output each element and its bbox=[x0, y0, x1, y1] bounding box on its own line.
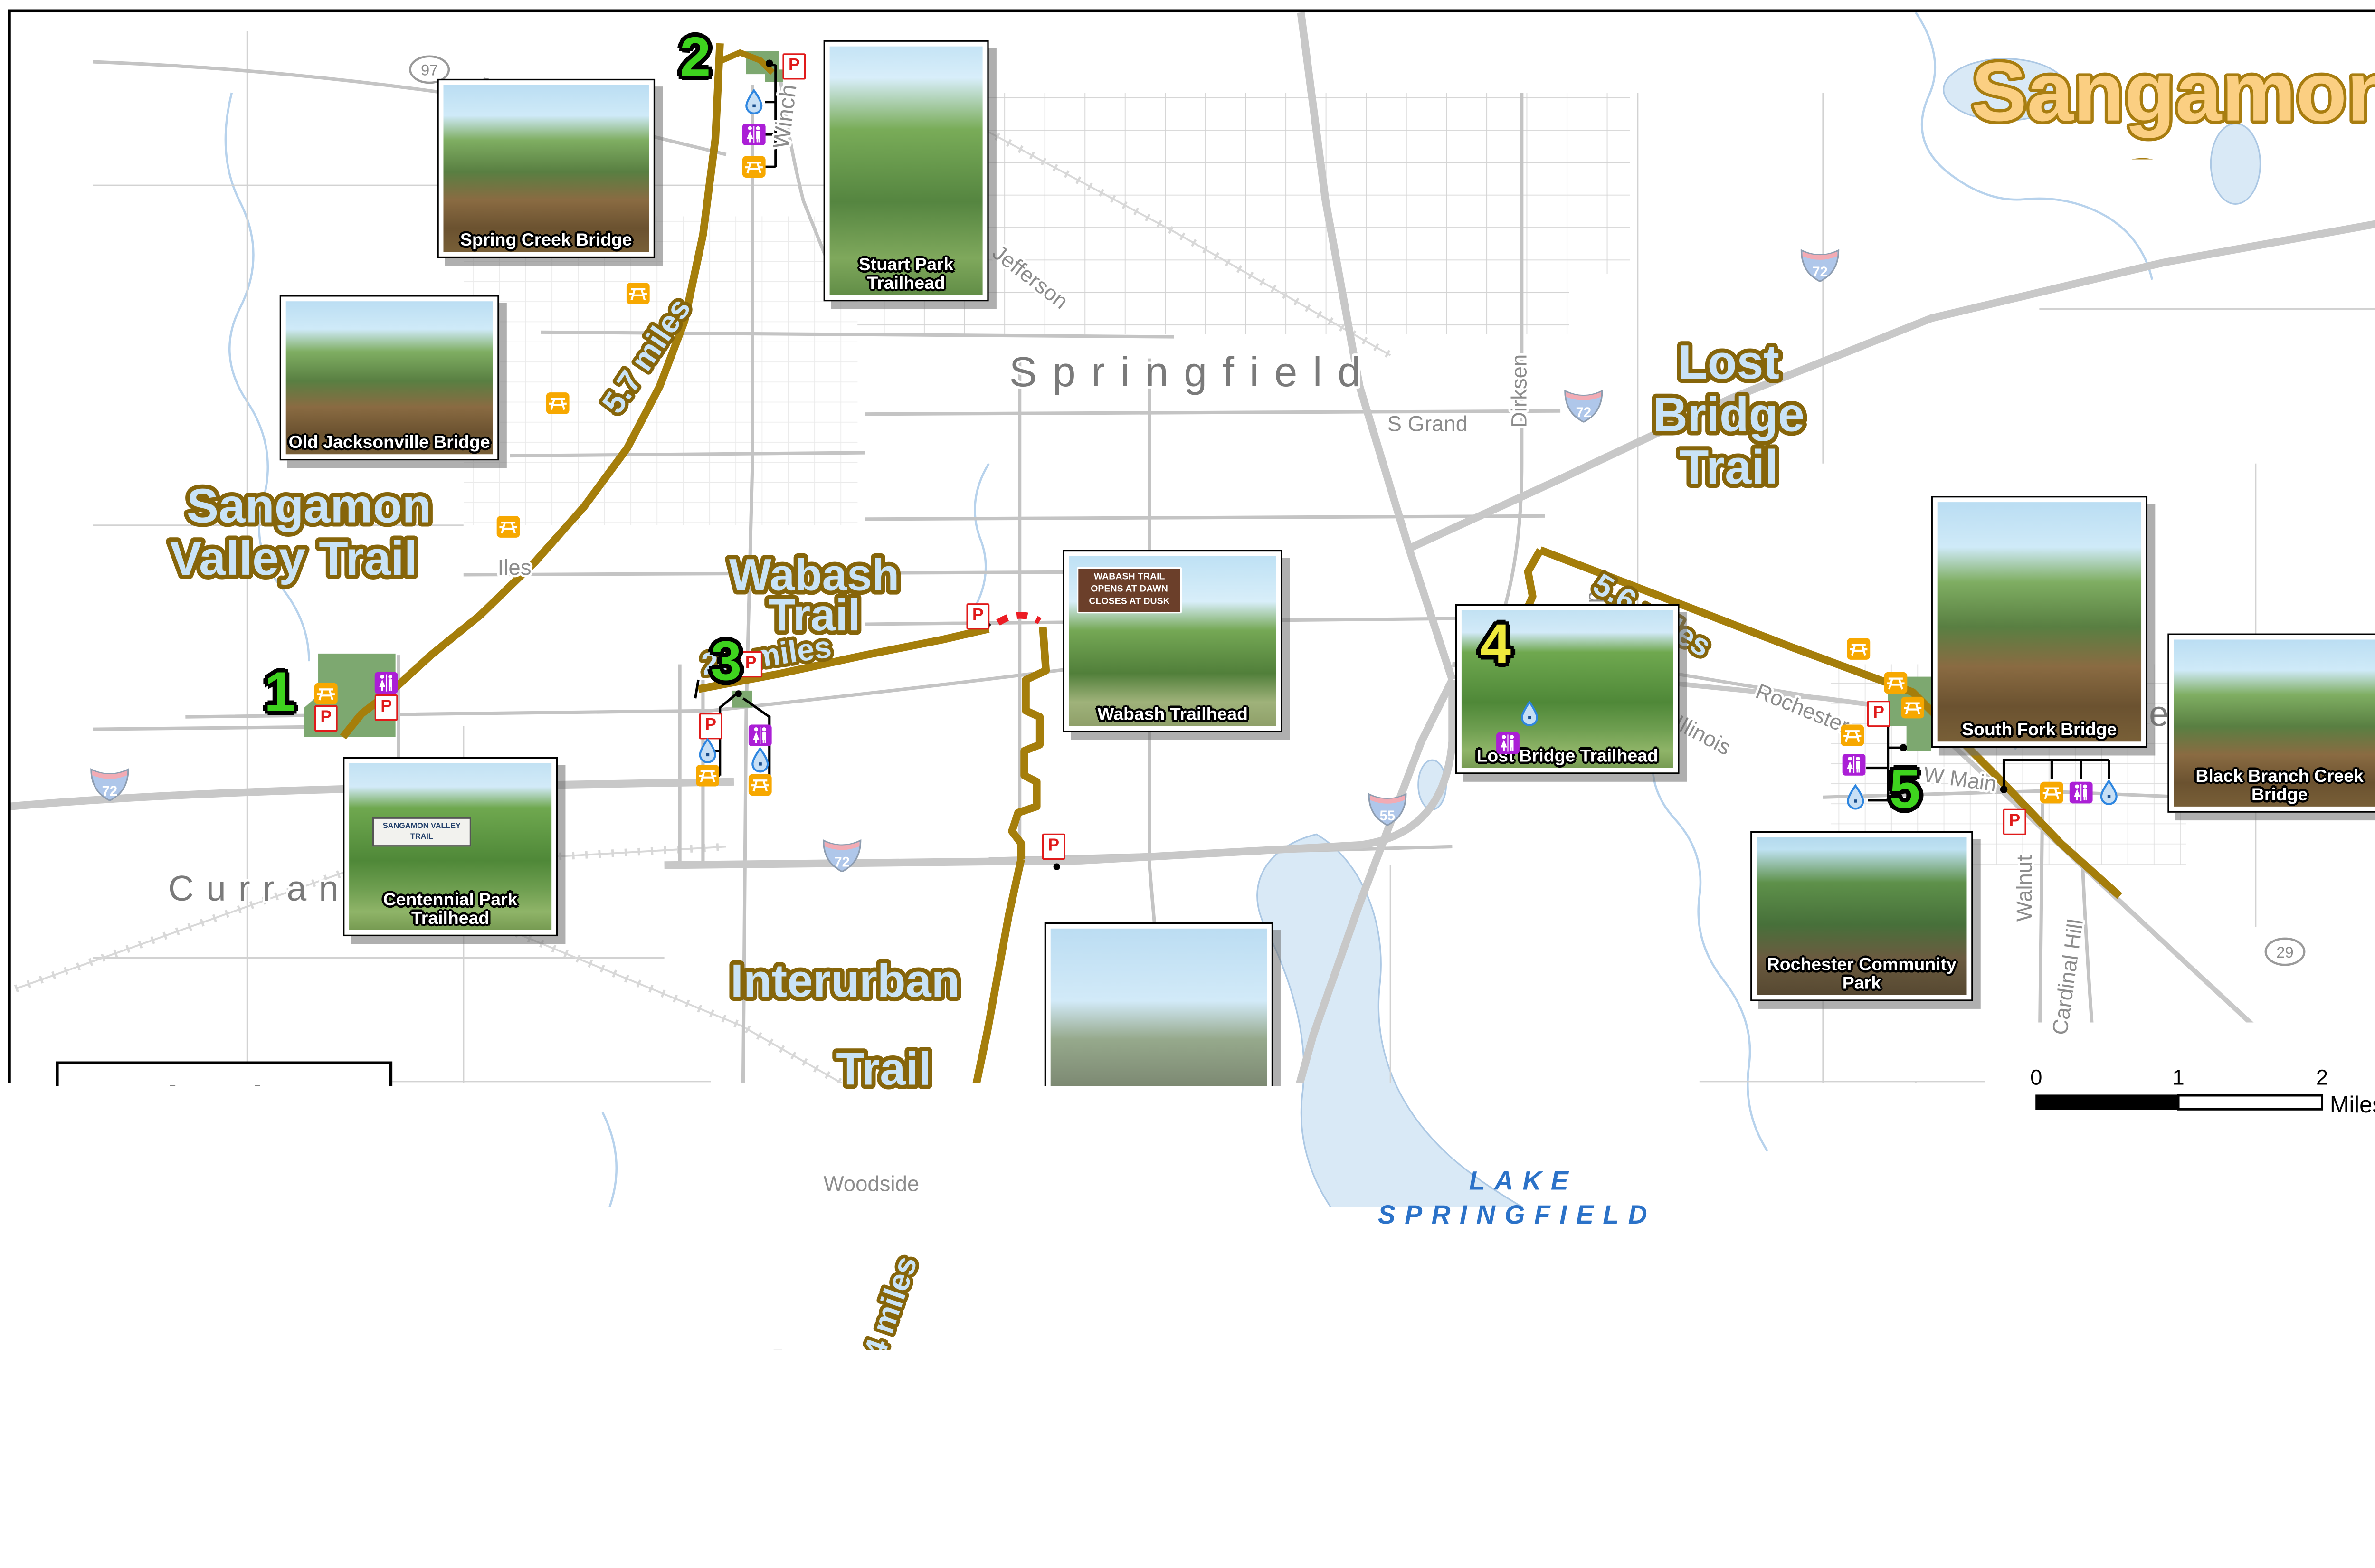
footnote-water: * Water shut off during winter months bbox=[1977, 1471, 2375, 1491]
bench-icon bbox=[749, 774, 772, 796]
legend-symbol-trail-icon bbox=[2242, 1158, 2353, 1186]
landmark-item-2: 2Stuart Park bbox=[80, 1201, 374, 1241]
restroom-icon bbox=[742, 124, 766, 145]
bench-icon bbox=[1841, 724, 1864, 746]
bench-icon bbox=[546, 392, 570, 414]
legend-label: Bench bbox=[2041, 1287, 2242, 1317]
landmark-marker-2: 2 bbox=[680, 29, 711, 85]
landmark-item-5: 5Rochester Community Park bbox=[80, 1397, 374, 1454]
landmark-number: 4 bbox=[80, 1329, 127, 1369]
legend-label: Restroom** bbox=[2041, 1362, 2242, 1392]
parking-icon: P bbox=[1042, 834, 1065, 860]
photo-caption: Wabash Trailhead bbox=[1064, 706, 1281, 724]
legend-footnotes: * Water shut off during winter months **… bbox=[1977, 1471, 2375, 1511]
restroom-icon bbox=[375, 672, 398, 694]
legend-label: Connector bbox=[2041, 1210, 2242, 1240]
photo-caption: Rochester Community Park bbox=[1752, 956, 1971, 993]
landmark-marker-3: 3 bbox=[711, 634, 741, 689]
legend-symbol-connector-icon bbox=[2242, 1209, 2353, 1240]
parking-icon: P bbox=[314, 705, 338, 732]
legend-label: Water* bbox=[2041, 1324, 2242, 1354]
photo-sign-line: OPENS AT DAWN bbox=[1082, 584, 1178, 597]
bench-icon bbox=[696, 765, 719, 787]
bench-icon bbox=[1884, 672, 1907, 694]
parking-icon: P bbox=[1867, 701, 1890, 727]
photo-caption: Interurban Trailhead bbox=[514, 1447, 731, 1466]
bench-icon bbox=[1901, 697, 1924, 719]
photo-sign-line: TRAIL bbox=[377, 832, 467, 842]
parking-icon: P bbox=[375, 694, 398, 721]
bench-icon bbox=[497, 516, 520, 538]
photo-centennial-park-trailhead: SANGAMON VALLEYTRAILCentennial Park Trai… bbox=[343, 757, 558, 936]
bench-icon bbox=[2040, 782, 2063, 804]
photo-caption: Spring Creek Bridge bbox=[439, 232, 654, 250]
legend-row-bench: Bench bbox=[2041, 1287, 2353, 1317]
water-icon bbox=[1845, 784, 1865, 810]
photo-sign-line: SANGAMON VALLEY bbox=[377, 822, 467, 832]
photo-south-fork-bridge: South Fork Bridge bbox=[1931, 496, 2147, 748]
photo-caption: Lost Bridge Trailhead bbox=[1457, 748, 1678, 766]
parking-icon: P bbox=[739, 651, 762, 677]
bench-icon bbox=[1847, 638, 1870, 660]
landmark-marker-1: 1 bbox=[264, 665, 295, 720]
landmark-number: 2 bbox=[80, 1201, 127, 1241]
landmark-marker-5: 5 bbox=[1890, 762, 1920, 817]
photo-caption: Black Branch Creek Bridge bbox=[2169, 768, 2375, 805]
landmark-number: 5 bbox=[80, 1406, 127, 1446]
photo-lake-springfield-bridge: Lake Springfield Bridge bbox=[912, 1301, 1136, 1471]
legend-row-parking: ParkingP bbox=[2041, 1248, 2353, 1279]
photo-sign-line: CLOSES AT DUSK bbox=[1082, 597, 1178, 609]
landmarks-box: Landmarks 1Centennial Park2Stuart Park3V… bbox=[56, 1062, 392, 1485]
landmark-item-4: 4Illinois Dept. of Transportation bbox=[80, 1321, 374, 1378]
legend-symbol-bench-icon bbox=[2242, 1288, 2353, 1316]
parking-icon: P bbox=[699, 713, 722, 739]
restroom-icon bbox=[1496, 732, 1520, 754]
bench-icon bbox=[790, 1475, 814, 1497]
photo-caption: Lake Springfield Bridge bbox=[913, 1444, 1134, 1463]
photo-old-jacksonville-bridge: Old Jacksonville Bridge bbox=[280, 295, 499, 460]
landmark-label: Rochester Community Park bbox=[142, 1397, 374, 1454]
legend-symbol-water-icon bbox=[2242, 1326, 2353, 1352]
water-icon bbox=[698, 738, 718, 764]
legend-row-connector: Connector bbox=[2041, 1209, 2353, 1240]
landmark-label: Centennial Park bbox=[142, 1146, 335, 1174]
landmark-label: Stuart Park bbox=[142, 1207, 278, 1235]
legend-symbol-parking-icon: P bbox=[2242, 1248, 2353, 1279]
water-icon bbox=[744, 89, 764, 115]
bench-icon bbox=[909, 1375, 932, 1397]
water-icon bbox=[1520, 701, 1539, 727]
restroom-icon bbox=[749, 724, 772, 746]
photo-wabash-trailhead: WABASH TRAILOPENS AT DAWNCLOSES AT DUSKW… bbox=[1063, 550, 1282, 732]
map-credit: Map by: SSCRPC Planning Staff, April 201… bbox=[62, 1492, 423, 1514]
parking-icon: P bbox=[776, 1501, 799, 1527]
legend-row-restroom: Restroom** bbox=[2041, 1362, 2353, 1392]
bench-icon bbox=[314, 683, 338, 705]
bench-icon bbox=[963, 1159, 987, 1180]
parking-icon: P bbox=[2003, 809, 2026, 835]
photo-caption: Centennial Park Trailhead bbox=[344, 891, 556, 928]
photo-norfolk-southern-rr-bridge: Norfolk Southern RR Bridge bbox=[1045, 922, 1273, 1200]
photo-caption: Norfolk Southern RR Bridge bbox=[1046, 1156, 1272, 1193]
photo-caption: Old Jacksonville Bridge bbox=[281, 434, 497, 453]
photo-black-branch-creek-bridge: Black Branch Creek Bridge bbox=[2167, 634, 2375, 813]
landmark-label: Vredenbergh Park bbox=[142, 1267, 360, 1295]
landmark-number: 3 bbox=[80, 1261, 127, 1302]
bench-icon bbox=[742, 156, 766, 178]
legend-box: Multi-use TrailsConnectorParkingPBenchWa… bbox=[2012, 1125, 2367, 1454]
parking-icon: P bbox=[966, 603, 989, 629]
parking-icon: P bbox=[782, 53, 806, 79]
bench-icon bbox=[627, 283, 650, 304]
legend-label: Multi-use Trails bbox=[2041, 1142, 2242, 1202]
water-icon bbox=[2099, 779, 2119, 806]
landmarks-title: Landmarks bbox=[84, 1080, 374, 1125]
water-icon bbox=[750, 747, 770, 773]
parking-icon: P bbox=[954, 1212, 977, 1238]
legend-symbol-restroom-icon bbox=[2242, 1363, 2353, 1391]
landmark-number: 1 bbox=[80, 1140, 127, 1180]
photo-interurban-trailhead: Interurban Trailhead bbox=[513, 1298, 732, 1474]
landmark-label: Illinois Dept. of Transportation bbox=[142, 1321, 374, 1378]
photo-caption: Stuart Park Trailhead bbox=[825, 257, 988, 294]
photo-caption: South Fork Bridge bbox=[1933, 722, 2146, 740]
map-stage: 72727272555597429 SangamonCountyMulti-Us… bbox=[0, 0, 2375, 1568]
legend-row-water: Water* bbox=[2041, 1324, 2353, 1354]
photo-stuart-park-trailhead: Stuart Park Trailhead bbox=[824, 40, 989, 302]
photo-spring-creek-bridge: Spring Creek Bridge bbox=[437, 79, 655, 258]
photo-rochester-community-park: Rochester Community Park bbox=[1750, 831, 1973, 1001]
landmark-item-1: 1Centennial Park bbox=[80, 1140, 374, 1180]
photo-sign-line: WABASH TRAIL bbox=[1082, 571, 1178, 584]
restroom-icon bbox=[1843, 754, 1866, 776]
landmark-marker-4: 4 bbox=[1480, 617, 1511, 672]
legend-row-trail: Multi-use Trails bbox=[2041, 1142, 2353, 1202]
restroom-icon bbox=[2070, 782, 2093, 804]
landmark-item-3: 3Vredenbergh Park bbox=[80, 1261, 374, 1302]
legend-label: Parking bbox=[2041, 1248, 2242, 1278]
footnote-restroom: ** Restrooms in Rochester not available … bbox=[1977, 1491, 2375, 1511]
